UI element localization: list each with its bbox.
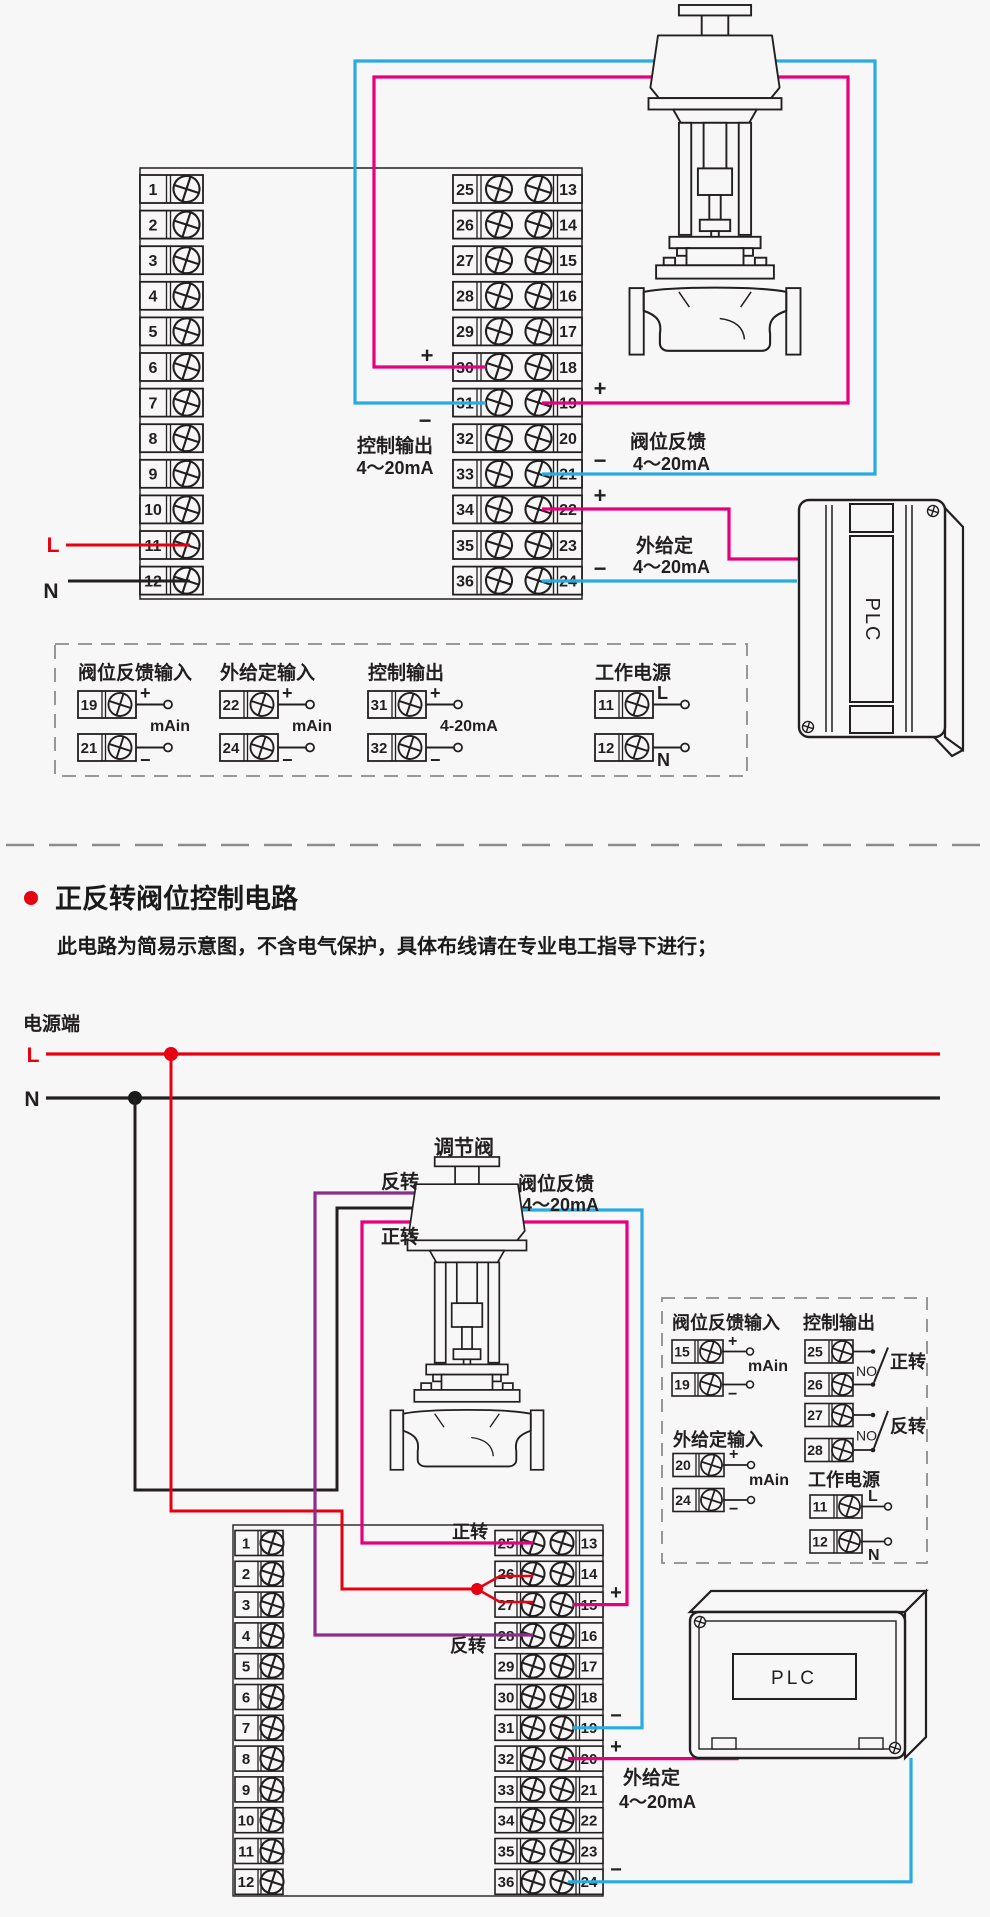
ext-setpoint-range: 4～20mA xyxy=(633,557,710,577)
legend-group: 外给定输入2224+−mAin xyxy=(220,661,332,770)
wiring-diagram-page: 1234567891011122513261427152816291730183… xyxy=(0,0,990,1917)
relay-no-label: NO xyxy=(856,1428,877,1444)
terminal-number: 35 xyxy=(456,538,474,555)
terminal-number: 19 xyxy=(81,697,98,714)
valve-part xyxy=(687,248,744,265)
terminal-number: 7 xyxy=(149,395,158,412)
terminal-number: 5 xyxy=(242,1659,250,1676)
neutral-label: N xyxy=(43,580,58,603)
legend-group: 阀位反馈输入15+19−mAin xyxy=(672,1312,788,1403)
reverse-label-top: 反转 xyxy=(381,1170,419,1193)
legend-title: 控制输出 xyxy=(368,661,444,684)
polarity-sign: − xyxy=(729,1501,738,1518)
valve-part xyxy=(403,1410,531,1467)
terminal-number: 33 xyxy=(456,467,474,484)
wire-control-output-plus xyxy=(374,77,848,403)
terminal-number: 7 xyxy=(242,1720,250,1737)
polarity-sign: + xyxy=(594,376,607,401)
terminal-number: 29 xyxy=(456,324,474,341)
terminal-number: 9 xyxy=(149,467,158,484)
terminal-number: 34 xyxy=(498,1813,515,1830)
terminal-number: 6 xyxy=(242,1689,250,1706)
terminal-number: 17 xyxy=(559,324,577,341)
section-subtitle: 此电路为简易示意图，不含电气保护，具体布线请在专业电工指导下进行； xyxy=(57,934,717,958)
plc-box: PLC xyxy=(799,500,963,756)
valve-part xyxy=(673,110,757,123)
valve-part xyxy=(426,1364,508,1374)
wire-control-output-minus xyxy=(355,61,875,474)
terminal-number: 13 xyxy=(581,1535,598,1552)
valve-title: 调节阀 xyxy=(434,1135,494,1159)
legend-title: 外给定输入 xyxy=(673,1429,763,1450)
valve-part xyxy=(679,123,691,235)
terminal-number: 22 xyxy=(223,697,240,714)
terminal-number: 33 xyxy=(498,1782,515,1799)
polarity-sign: − xyxy=(282,750,293,770)
power-phase-label: L xyxy=(868,1488,878,1505)
valve-part xyxy=(709,195,720,220)
polarity-sign: − xyxy=(140,750,151,770)
ext-setpoint-label: 外给定 xyxy=(636,534,693,557)
valve-part xyxy=(664,258,675,266)
legend-group: 控制输出2526NO正转2728NO反转 xyxy=(803,1312,926,1463)
valve-part xyxy=(442,1375,493,1390)
diagram2: 1234567891011122513261427152816291730183… xyxy=(233,1525,603,1896)
terminal-number: 20 xyxy=(675,1457,691,1473)
plc-side xyxy=(905,1591,926,1758)
relay-no-label: NO xyxy=(856,1363,877,1379)
relay-direction-label: 正转 xyxy=(890,1351,926,1372)
terminal-number: 8 xyxy=(242,1751,250,1768)
open-terminal-icon xyxy=(454,701,462,709)
contact-dot xyxy=(871,1349,876,1354)
legend-range: mAin xyxy=(749,1472,789,1489)
open-terminal-icon xyxy=(885,1503,892,1510)
legend-group: 外给定输入20+24−mAin xyxy=(673,1429,789,1518)
terminal-number: 32 xyxy=(371,740,388,757)
terminal-number: 2 xyxy=(149,217,158,234)
reverse-label-strip: 反转 xyxy=(450,1635,486,1656)
valve-part xyxy=(669,237,760,248)
valve-part xyxy=(391,1410,404,1470)
plc-label: PLC xyxy=(771,1668,817,1689)
valve-part xyxy=(700,220,730,231)
forward-label-strip: 正转 xyxy=(452,1521,488,1542)
terminal-number: 11 xyxy=(598,697,614,714)
terminal-number: 28 xyxy=(807,1442,823,1458)
terminal-number: 31 xyxy=(498,1720,515,1737)
open-terminal-icon xyxy=(164,701,172,709)
valve-part xyxy=(453,1349,480,1359)
contact-dot xyxy=(871,1448,876,1453)
open-terminal-icon xyxy=(748,1497,755,1504)
plc-foot xyxy=(712,1738,736,1749)
terminal-number: 25 xyxy=(807,1344,823,1360)
open-terminal-icon xyxy=(306,701,314,709)
terminal-number: 4 xyxy=(149,289,158,306)
terminal-number: 13 xyxy=(559,182,577,199)
terminal-number: 3 xyxy=(149,253,158,270)
terminal-number: 4 xyxy=(242,1628,251,1645)
open-terminal-icon xyxy=(681,744,689,752)
legend-range: 4-20mA xyxy=(440,718,498,735)
control-valve-icon xyxy=(391,1157,544,1470)
valve-part xyxy=(409,1184,525,1240)
legend-group: 工作电源11L12N xyxy=(808,1469,892,1564)
terminal-number: 17 xyxy=(581,1659,598,1676)
terminal-number: 26 xyxy=(807,1377,823,1393)
polarity-sign: − xyxy=(728,1386,737,1403)
feedback-range-2: 4～20mA xyxy=(522,1195,599,1215)
terminal-number: 8 xyxy=(149,431,158,448)
legend-group: 工作电源1112LN xyxy=(595,661,689,770)
polarity-sign: + xyxy=(282,683,293,703)
live-label: L xyxy=(47,534,60,557)
polarity-sign: + xyxy=(729,1446,738,1463)
terminal-number: 12 xyxy=(812,1534,828,1550)
polarity-sign: + xyxy=(728,1333,737,1350)
plc-top xyxy=(690,1591,926,1612)
polarity-sign: + xyxy=(610,1736,622,1758)
polarity-sign: − xyxy=(430,750,441,770)
diagram2-power-rails xyxy=(46,1047,940,1105)
valve-feedback-range: 4～20mA xyxy=(633,454,710,474)
valve-part xyxy=(755,258,766,266)
plc-side xyxy=(945,508,963,750)
contact-dot xyxy=(871,1413,876,1418)
open-terminal-icon xyxy=(747,1381,754,1388)
terminal-number: 29 xyxy=(498,1659,515,1676)
terminal-number: 12 xyxy=(598,740,615,757)
open-terminal-icon xyxy=(747,1348,754,1355)
terminal-number: 5 xyxy=(149,324,158,341)
forward-label-top: 正转 xyxy=(381,1225,419,1248)
power-side-label: 电源端 xyxy=(23,1012,80,1035)
terminal-number: 19 xyxy=(674,1377,690,1393)
polarity-sign: + xyxy=(430,683,441,703)
valve-feedback-label: 阀位反馈 xyxy=(630,430,706,453)
valve-part xyxy=(457,1262,477,1303)
polarity-sign: + xyxy=(594,483,607,508)
terminal-number: 16 xyxy=(581,1628,598,1645)
terminal-number: 10 xyxy=(144,502,162,519)
plc-label: PLC xyxy=(861,598,883,643)
terminal-number: 9 xyxy=(242,1782,250,1799)
diagram-canvas: 1234567891011122513261427152816291730183… xyxy=(0,0,990,1917)
valve-part xyxy=(739,123,751,235)
valve-part xyxy=(704,123,727,169)
diagram1-legend: 阀位反馈输入1921+−mAin外给定输入2224+−mAin控制输出3132+… xyxy=(55,644,747,776)
valve-part xyxy=(630,288,644,355)
neutral-label-2: N xyxy=(24,1088,39,1111)
legend-group: 阀位反馈输入1921+−mAin xyxy=(78,661,192,770)
valve-part xyxy=(455,1166,479,1184)
power-phase-label: N xyxy=(868,1547,880,1564)
terminal-number: 31 xyxy=(371,697,388,714)
valve-part xyxy=(435,1262,446,1362)
terminal-number: 11 xyxy=(238,1843,254,1860)
contact-dot xyxy=(871,1382,876,1387)
terminal-number: 22 xyxy=(559,502,577,519)
legend-title: 阀位反馈输入 xyxy=(672,1312,780,1333)
valve-part xyxy=(644,288,787,351)
diagram2-legend: 阀位反馈输入15+19−mAin外给定输入20+24−mAin控制输出2526N… xyxy=(662,1298,927,1564)
legend-title: 控制输出 xyxy=(803,1312,875,1333)
terminal-number: 32 xyxy=(498,1751,515,1768)
open-terminal-icon xyxy=(306,744,314,752)
terminal-number: 16 xyxy=(559,289,577,306)
polarity-sign: − xyxy=(594,556,607,581)
polarity-sign: L xyxy=(657,683,668,703)
wire-live-to-commons xyxy=(171,1054,477,1589)
open-terminal-icon xyxy=(748,1462,755,1469)
valve-part xyxy=(452,1303,483,1327)
ext-label-2: 外给定 xyxy=(623,1766,680,1789)
terminal-number: 26 xyxy=(456,217,474,234)
plc-tab xyxy=(850,504,893,532)
valve-part xyxy=(462,1327,472,1349)
terminal-number: 15 xyxy=(674,1344,690,1360)
valve-part xyxy=(503,1383,513,1390)
open-terminal-icon xyxy=(454,744,462,752)
valve-part xyxy=(430,1251,505,1263)
terminal-number: 28 xyxy=(456,289,474,306)
terminal-number: 27 xyxy=(498,1597,515,1614)
terminal-number: 12 xyxy=(238,1874,255,1891)
polarity-sign: − xyxy=(610,1859,622,1881)
legend-title: 阀位反馈输入 xyxy=(78,661,192,684)
junction-dot xyxy=(471,1583,483,1595)
legend-range: mAin xyxy=(150,718,190,735)
plc-box-2: PLC xyxy=(690,1591,926,1758)
legend-range: mAin xyxy=(748,1358,788,1375)
valve-part xyxy=(656,265,774,278)
terminal-number: 22 xyxy=(581,1813,598,1830)
legend-title: 工作电源 xyxy=(808,1469,880,1490)
terminal-number: 2 xyxy=(242,1566,250,1583)
wire-feedback-minus xyxy=(503,1210,642,1728)
terminal-number: 23 xyxy=(581,1843,598,1860)
terminal-number: 10 xyxy=(238,1813,255,1830)
terminal-number: 20 xyxy=(559,431,577,448)
valve-part xyxy=(421,1383,431,1390)
terminal-number: 18 xyxy=(559,360,577,377)
control-output-range: 4～20mA xyxy=(356,458,433,478)
valve-part xyxy=(679,5,751,15)
valve-part xyxy=(650,35,779,98)
polarity-sign: N xyxy=(657,750,670,770)
open-terminal-icon xyxy=(885,1538,892,1545)
terminal-number: 1 xyxy=(149,182,158,199)
plc-foot xyxy=(859,1738,883,1749)
terminal-number: 24 xyxy=(675,1492,691,1508)
live-label-2: L xyxy=(27,1044,40,1067)
control-output-label: 控制输出 xyxy=(357,434,433,457)
feedback-label-2: 阀位反馈 xyxy=(518,1172,594,1195)
terminal-number: 27 xyxy=(807,1407,823,1423)
terminal-number: 24 xyxy=(223,740,240,757)
valve-part xyxy=(488,1262,499,1362)
legend-title: 外给定输入 xyxy=(220,661,315,684)
legend-group: 控制输出3132+−4-20mA xyxy=(368,661,498,770)
valve-part xyxy=(649,98,782,109)
ext-range-2: 4～20mA xyxy=(619,1792,696,1812)
terminal-number: 36 xyxy=(456,573,474,590)
terminal-number: 14 xyxy=(559,217,577,234)
relay-direction-label: 反转 xyxy=(890,1416,926,1437)
terminal-number: 36 xyxy=(498,1874,515,1891)
terminal-number: 14 xyxy=(581,1566,598,1583)
legend-title: 工作电源 xyxy=(595,661,671,684)
terminal-number: 11 xyxy=(813,1499,828,1515)
terminal-number: 34 xyxy=(456,502,474,519)
terminal-number: 30 xyxy=(498,1689,515,1706)
polarity-sign: + xyxy=(140,683,151,703)
valve-part xyxy=(698,168,732,195)
wire-neutral-to-valve xyxy=(135,1098,427,1490)
terminal-number: 3 xyxy=(242,1597,250,1614)
polarity-sign: − xyxy=(419,408,432,433)
terminal-number: 35 xyxy=(498,1843,515,1860)
terminal-number: 32 xyxy=(456,431,474,448)
polarity-sign: − xyxy=(610,1705,622,1727)
terminal-number: 21 xyxy=(581,1782,598,1799)
open-terminal-icon xyxy=(164,744,172,752)
valve-part xyxy=(702,15,729,35)
valve-part xyxy=(786,288,800,355)
polarity-sign: + xyxy=(421,343,434,368)
terminal-number: 27 xyxy=(456,253,474,270)
terminal-number: 18 xyxy=(581,1689,598,1706)
valve-part xyxy=(408,1240,527,1250)
control-valve-icon xyxy=(630,5,801,355)
valve-part xyxy=(414,1390,519,1402)
valve-part xyxy=(531,1410,544,1470)
polarity-sign: − xyxy=(594,448,607,473)
terminal-number: 15 xyxy=(559,253,577,270)
bullet-icon xyxy=(24,891,38,905)
legend-range: mAin xyxy=(292,718,332,735)
terminal-number: 6 xyxy=(149,360,158,377)
terminal-number: 25 xyxy=(456,182,474,199)
polarity-sign: + xyxy=(610,1582,622,1604)
open-terminal-icon xyxy=(681,701,689,709)
terminal-number: 1 xyxy=(242,1535,250,1552)
diagram1: 1234567891011122513261427152816291730183… xyxy=(140,168,582,599)
section-title: 正反转阀位控制电路 xyxy=(55,883,299,914)
terminal-number: 23 xyxy=(559,538,577,555)
terminal-number: 21 xyxy=(81,740,98,757)
plc-tab xyxy=(850,706,893,733)
